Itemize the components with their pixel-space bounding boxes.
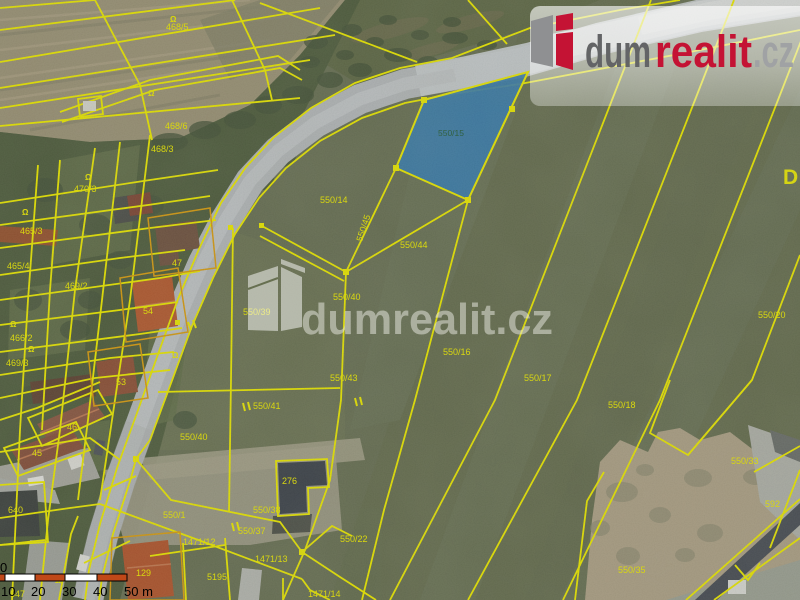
svg-text:realit: realit [655, 26, 752, 77]
svg-text:0: 0 [0, 560, 7, 575]
svg-text:30: 30 [62, 584, 76, 599]
svg-text:40: 40 [93, 584, 107, 599]
svg-text:dum: dum [585, 26, 651, 77]
svg-text:dumrealit.cz: dumrealit.cz [301, 295, 553, 344]
svg-text:.cz: .cz [753, 26, 794, 77]
svg-text:20: 20 [31, 584, 45, 599]
svg-text:50 m: 50 m [124, 584, 153, 599]
svg-text:10: 10 [1, 584, 15, 599]
